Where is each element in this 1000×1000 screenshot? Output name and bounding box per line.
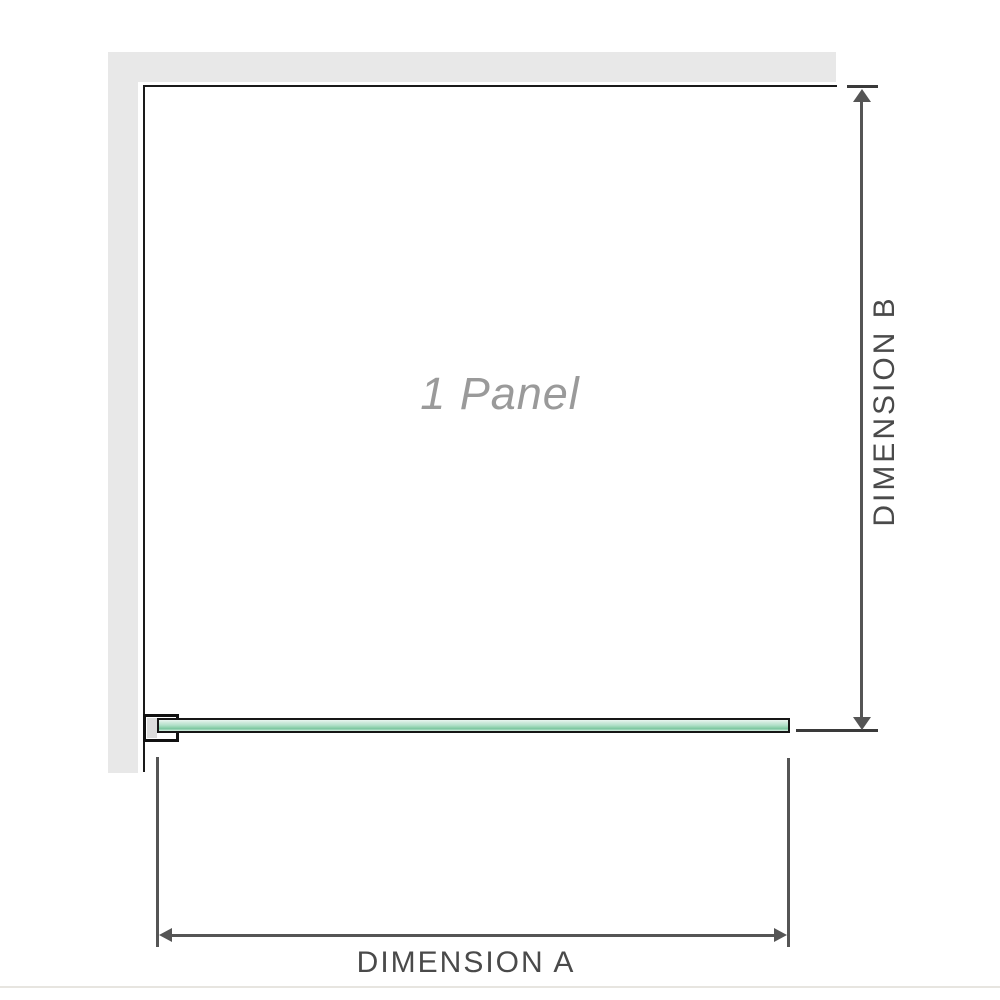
dimension-b-line [860,99,863,719]
arrow-down-icon [853,717,871,730]
panel-count-label: 1 Panel [350,368,650,420]
wall-bracket-pad [147,718,157,738]
arrow-up-icon [853,89,871,102]
arrow-left-icon [159,928,172,942]
wall-top-strip [108,52,836,82]
dimension-a-label: DIMENSION A [357,946,576,980]
product-diagram: 1 Panel DIMENSION B DIMENSION A [0,0,1000,1000]
dimension-a-left-extension [156,757,159,947]
dimension-a-line [169,934,776,937]
arrow-right-icon [774,928,787,942]
baseline-divider [0,986,1000,988]
dimension-a-right-extension [787,758,790,947]
glass-panel-bar [157,718,790,733]
wall-left-strip [108,52,138,773]
dimension-b-top-tick [847,85,878,88]
panel-outline [143,85,837,772]
dimension-b-label: DIMENSION B [868,295,902,526]
